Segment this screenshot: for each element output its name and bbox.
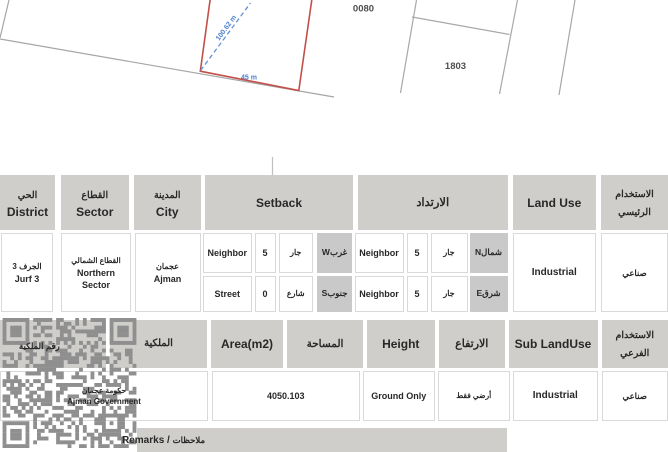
svg-text:1803: 1803 bbox=[445, 61, 466, 72]
svg-text:100.62 m: 100.62 m bbox=[215, 14, 238, 42]
svg-text:45 m: 45 m bbox=[241, 75, 257, 82]
svg-text:0080: 0080 bbox=[353, 4, 374, 15]
